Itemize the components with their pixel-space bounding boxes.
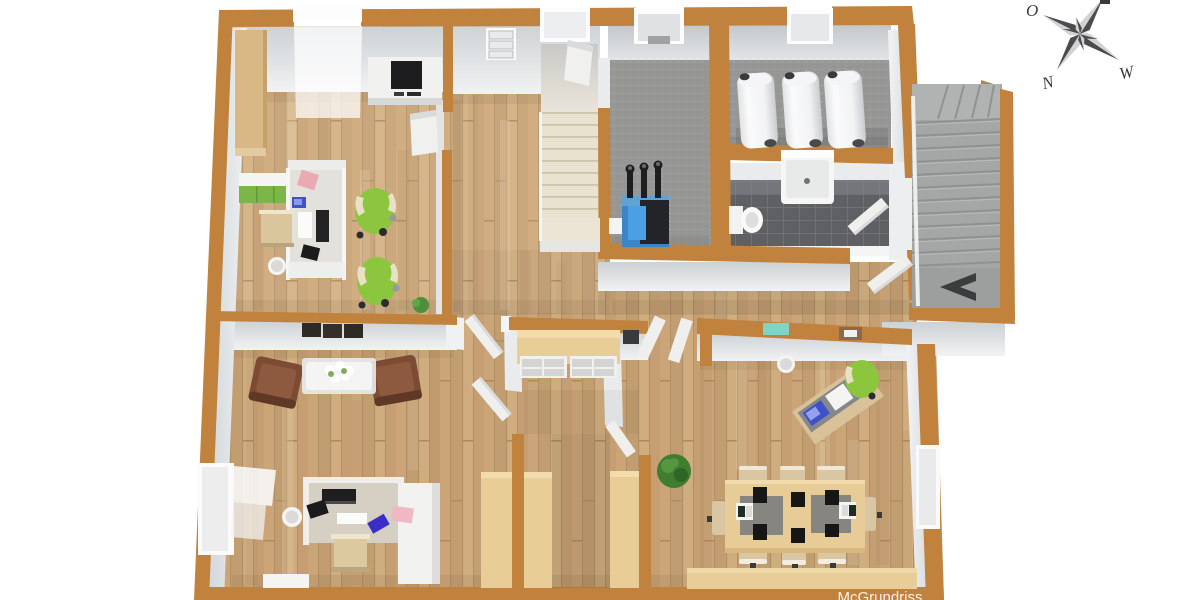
svg-text:O: O xyxy=(1026,1,1038,20)
svg-text:McGrundriss: McGrundriss xyxy=(837,589,922,600)
